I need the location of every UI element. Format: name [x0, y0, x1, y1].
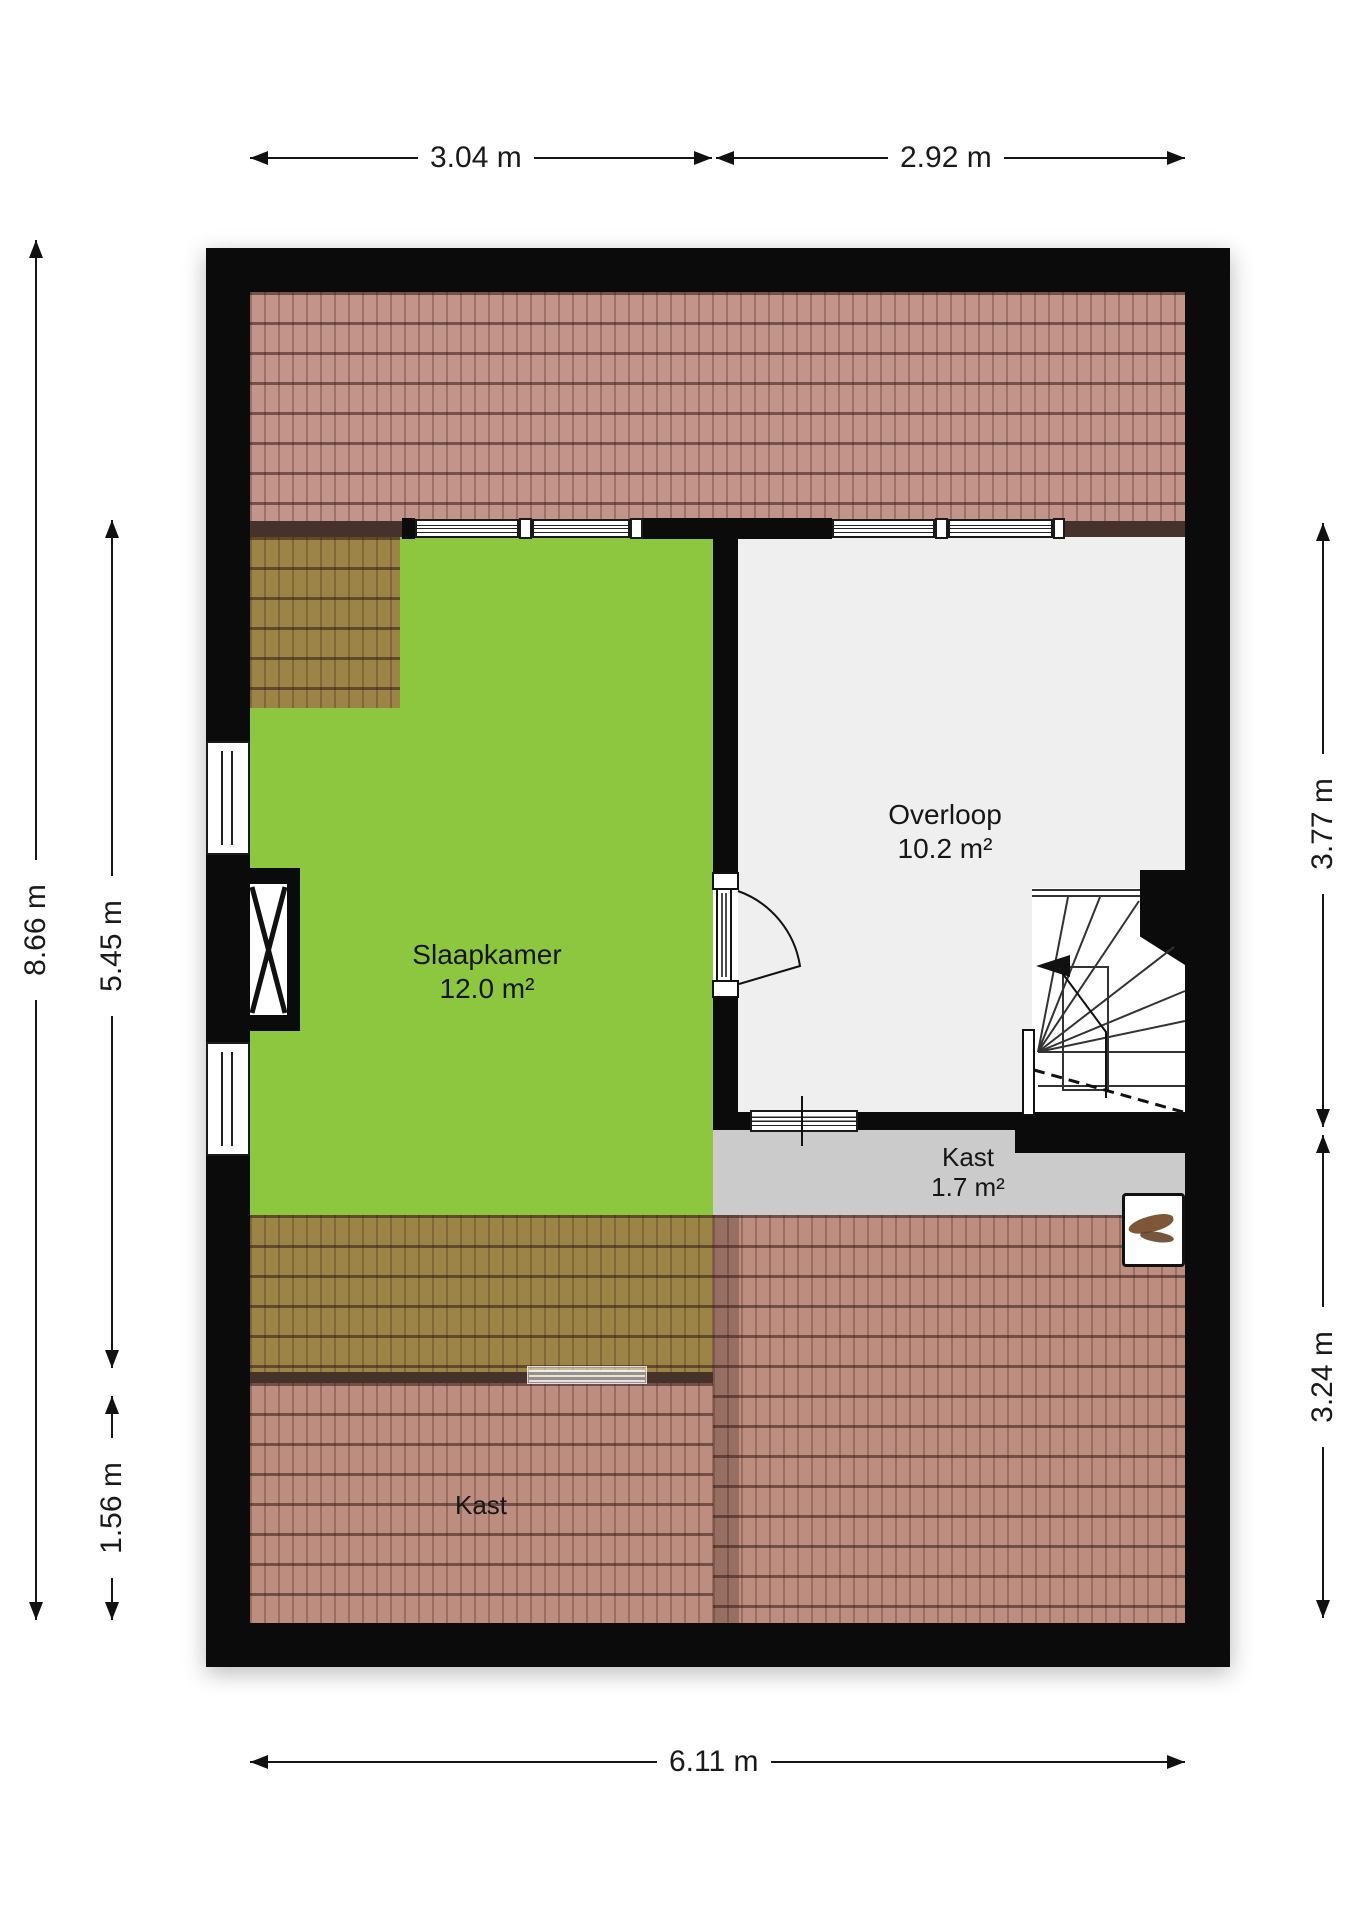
- room-label-overloop: Overloop 10.2 m²: [795, 798, 1095, 866]
- vector-detail-overlay: [0, 0, 1358, 1920]
- dimension-label: 2.92 m: [888, 138, 1004, 178]
- room-area: 10.2 m²: [795, 832, 1095, 866]
- dimension-label: 5.45 m: [92, 876, 132, 1016]
- arrowhead: [105, 1350, 119, 1368]
- arrowhead: [250, 1755, 268, 1769]
- arrowhead: [29, 1602, 43, 1620]
- dimension-label: 3.04 m: [418, 138, 534, 178]
- room-area: 12.0 m²: [337, 972, 637, 1006]
- room-name: Kast: [381, 1490, 581, 1520]
- arrowhead: [250, 151, 268, 165]
- dimension-label: 3.77 m: [1303, 754, 1343, 894]
- arrowhead: [1167, 1755, 1185, 1769]
- arrowhead: [105, 520, 119, 538]
- arrowhead: [1316, 1135, 1330, 1153]
- room-area: 1.7 m²: [843, 1172, 1093, 1202]
- dimension-label: 8.66 m: [16, 860, 56, 1000]
- room-label-kast-small: Kast 1.7 m²: [843, 1142, 1093, 1202]
- arrowhead: [694, 151, 712, 165]
- room-label-kast-attic: Kast: [381, 1490, 581, 1520]
- stairs-winder-icon: [1023, 890, 1185, 1115]
- arrowhead: [29, 240, 43, 258]
- dimension-label: 6.11 m: [657, 1742, 771, 1782]
- arrowhead: [105, 1602, 119, 1620]
- dimension-label: 1.56 m: [92, 1438, 132, 1578]
- arrowhead: [1167, 151, 1185, 165]
- arrowhead: [1316, 1109, 1330, 1127]
- dimension-label: 3.24 m: [1303, 1307, 1343, 1447]
- door-swing-icon: [713, 873, 800, 997]
- arrowhead: [105, 1396, 119, 1414]
- room-label-slaapkamer: Slaapkamer 12.0 m²: [337, 938, 637, 1006]
- floorplan-canvas: Slaapkamer 12.0 m² Overloop 10.2 m² Kast…: [0, 0, 1358, 1920]
- room-name: Kast: [843, 1142, 1093, 1172]
- arrowhead: [1316, 1600, 1330, 1618]
- room-name: Slaapkamer: [337, 938, 637, 972]
- shaft-cross-icon: [252, 887, 285, 1013]
- arrowhead: [1316, 523, 1330, 541]
- arrowhead: [716, 151, 734, 165]
- knee-window-glazing: [529, 1371, 645, 1381]
- room-name: Overloop: [795, 798, 1095, 832]
